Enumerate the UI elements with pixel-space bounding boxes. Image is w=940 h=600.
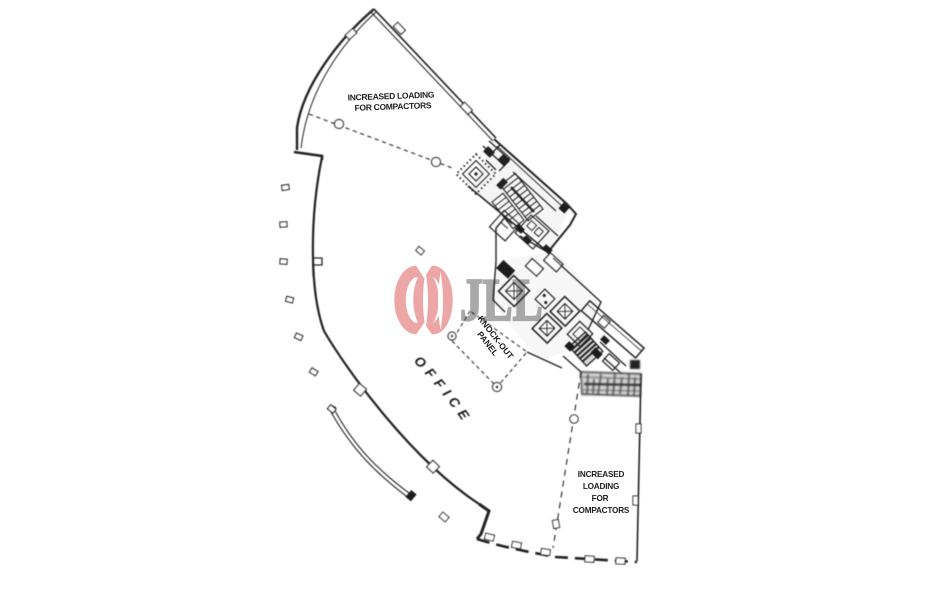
svg-text:INCREASED: INCREASED (578, 470, 625, 479)
svg-text:FOR: FOR (592, 494, 609, 503)
svg-text:LOADING: LOADING (583, 482, 619, 491)
svg-text:COMPACTORS: COMPACTORS (573, 506, 630, 515)
svg-text:OFFICE: OFFICE (411, 353, 475, 427)
svg-text:FOR COMPACTORS: FOR COMPACTORS (354, 100, 432, 113)
